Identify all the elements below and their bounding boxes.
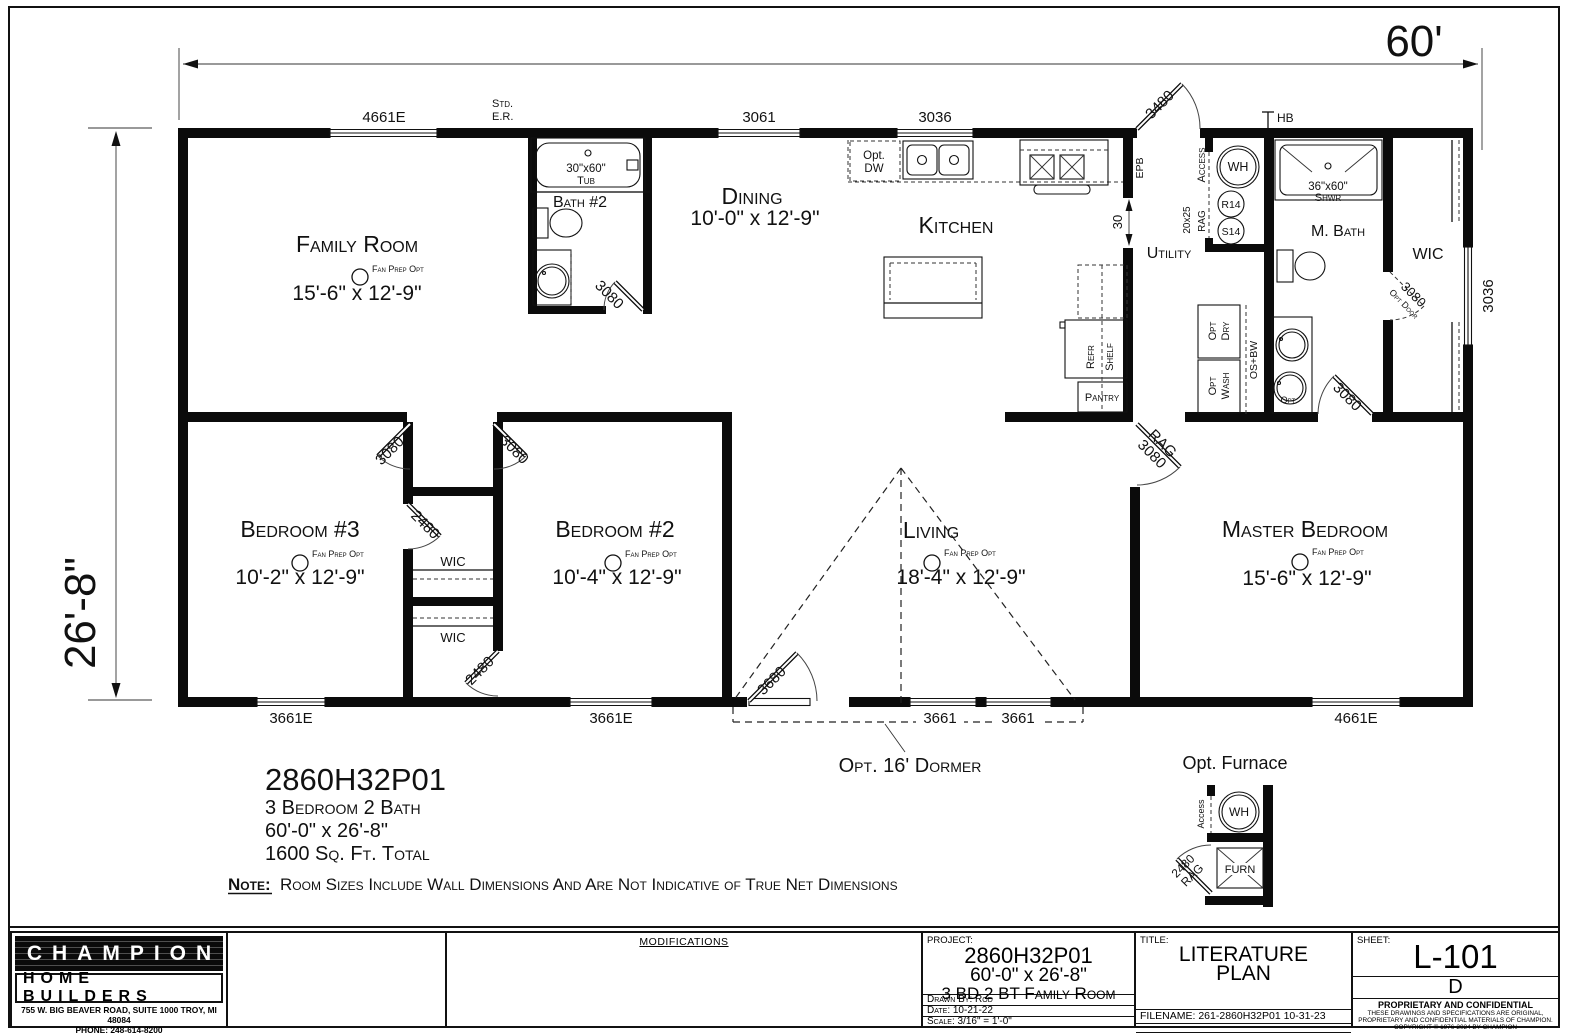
refrigerator: Refr Shelf <box>1060 265 1127 412</box>
window-3661e-bedroom3 <box>257 697 325 707</box>
modifications-header: MODIFICATIONS <box>447 933 921 948</box>
refr-label: Refr <box>1085 345 1097 369</box>
hb-label: HB <box>1277 111 1294 125</box>
range <box>1020 140 1108 194</box>
furn-label: FURN <box>1225 864 1256 876</box>
label-3036-top: 3036 <box>918 109 951 126</box>
sheet-block: SHEET: L-101 D PROPRIETARY AND CONFIDENT… <box>1351 933 1558 1026</box>
title-block: CHAMPION HOME BUILDERS 755 W. BIG BEAVER… <box>10 931 1560 1028</box>
tub-size-label: 30"x60" <box>566 163 606 175</box>
dim-30-label: 30 <box>1110 215 1125 229</box>
scale-row: Scale: 3/16" = 1'-0" <box>923 1016 1134 1027</box>
kitchen-sink <box>903 141 973 179</box>
opt-dormer-label: Opt. 16' Dormer <box>839 755 982 777</box>
opt-furnace-label: Opt. Furnace <box>1182 753 1287 773</box>
wh-label: WH <box>1228 160 1249 174</box>
sheet-revision: D <box>1353 976 1558 998</box>
project-block: PROJECT: 2860H32P01 60'-0" x 26'-8" 3 BD… <box>921 933 1134 1026</box>
furnace-detail: Opt. Furnace WH Access FURN 2480 RAG <box>1169 753 1288 907</box>
label-3061: 3061 <box>742 109 775 126</box>
access-label: Access <box>1196 148 1208 183</box>
floor-plan-drawing: 60' 26'-8" <box>0 0 1570 928</box>
company-division-box: HOME BUILDERS <box>15 973 223 1003</box>
company-name: CHAMPION <box>27 942 221 966</box>
window-4661e-master <box>1312 697 1400 707</box>
modifications-block: MODIFICATIONS <box>445 933 921 1026</box>
master-size: 15'-6" x 12'-9" <box>1242 567 1371 590</box>
bedroom3-name: Bedroom #3 <box>240 516 359 542</box>
window-3661e-bedroom2 <box>570 697 652 707</box>
window-3036-top <box>897 128 973 138</box>
s14-label: S14 <box>1222 226 1241 238</box>
company-division: HOME BUILDERS <box>23 970 221 1006</box>
title-block-section: TITLE: LITERATURE PLAN FILENAME: 261-286… <box>1134 933 1351 1026</box>
living-fan: Fan Prep Opt <box>944 548 996 558</box>
family-fan: Fan Prep Opt <box>372 264 424 274</box>
proprietary-line: PROPRIETARY AND CONFIDENTIAL <box>1353 1000 1558 1010</box>
bath2-fixtures: 30"x60" Tub <box>531 138 645 305</box>
label-3036-right: 3036 <box>1480 279 1497 312</box>
dining-size: 10'-0" x 12'-9" <box>690 207 819 230</box>
std-er-2: E.R. <box>492 111 513 123</box>
master-fan: Fan Prep Opt <box>1312 547 1364 557</box>
company-block: CHAMPION HOME BUILDERS 755 W. BIG BEAVER… <box>12 933 226 1026</box>
bedroom3-size: 10'-2" x 12'-9" <box>235 566 364 589</box>
r14-label: R14 <box>1221 199 1240 211</box>
door-mbath-label: 3080 <box>1329 379 1365 415</box>
sheet-label: SHEET: <box>1357 935 1390 946</box>
note-text: Room Sizes Include Wall Dimensions And A… <box>280 875 898 894</box>
opt-dw-label2: DW <box>864 163 883 175</box>
living-name: Living <box>903 517 959 543</box>
dormer-3661-right: 3661 <box>1001 710 1034 727</box>
mbath-name: M. Bath <box>1311 223 1365 240</box>
family-size: 15'-6" x 12'-9" <box>292 282 421 305</box>
bedroom2-name: Bedroom #2 <box>555 516 674 542</box>
note-label: Note: <box>228 875 271 894</box>
title-label: TITLE: <box>1140 935 1169 946</box>
bedroom2-size: 10'-4" x 12'-9" <box>552 566 681 589</box>
std-er-1: Std. <box>492 98 513 110</box>
furnace-wh-label: WH <box>1229 805 1249 819</box>
label-3661e-b2: 3661E <box>589 710 632 727</box>
window-3661-left <box>910 697 976 707</box>
epb-label: EPB <box>1134 157 1146 178</box>
title-line2: PLAN <box>1136 964 1351 983</box>
window-3661-right <box>986 697 1051 707</box>
summary-beds: 3 Bedroom 2 Bath <box>265 797 421 819</box>
overall-depth-dim: 26'-8" <box>56 557 105 669</box>
label-4661e-top: 4661E <box>362 109 405 126</box>
window-3036-right <box>1463 247 1473 345</box>
floor-plan-sheet: 60' 26'-8" <box>0 0 1570 1036</box>
pantry-label: Pantry <box>1085 392 1120 404</box>
family-name: Family Room <box>296 231 418 257</box>
wic-master-name: WIC <box>1412 246 1443 263</box>
dining-name: Dining <box>721 183 782 209</box>
empty-row-2 <box>1136 1032 1351 1036</box>
opt-sink-label: Opt <box>1281 395 1296 405</box>
title-strip-top-line <box>10 926 1560 928</box>
filename-row: FILENAME: 261-2860H32P01 10-31-23 <box>1136 1009 1351 1023</box>
living-size: 18'-4" x 12'-9" <box>896 566 1025 589</box>
project-size: 60'-0" x 26'-8" <box>923 966 1134 985</box>
wic1-label: WIC <box>440 554 465 569</box>
empty-row-1 <box>1136 1023 1351 1032</box>
label-3661e-b3: 3661E <box>269 710 312 727</box>
furnace-access-label: Access <box>1196 799 1206 829</box>
door-bedroom3-label: 3080 <box>372 433 408 469</box>
project-model: 2860H32P01 <box>923 946 1134 966</box>
interior-walls <box>178 138 1463 707</box>
bedroom3-fan: Fan Prep Opt <box>312 549 364 559</box>
door-rag3080-label: RAG 3080 <box>1134 426 1180 472</box>
window-4661e-top <box>330 128 437 138</box>
bath2-name: Bath #2 <box>553 194 607 211</box>
kitchen-name: Kitchen <box>919 212 994 238</box>
blank-block <box>226 933 445 1026</box>
door-opt-label: 3080 Opt Door <box>1387 276 1432 321</box>
label-4661e-master: 4661E <box>1334 710 1377 727</box>
master-name: Master Bedroom <box>1222 516 1388 542</box>
mbath-fixtures: 36"x60" Shwr Opt <box>1272 140 1459 413</box>
project-label: PROJECT: <box>927 935 973 946</box>
kitchen-fixtures: Opt. DW Refr <box>848 140 1127 412</box>
legal-line-1: THESE DRAWINGS AND SPECIFICATIONS ARE OR… <box>1353 1010 1558 1017</box>
summary-sqft: 1600 Sq. Ft. Total <box>265 843 430 865</box>
summary-size: 60'-0" x 26'-8" <box>265 820 388 842</box>
wic2-label: WIC <box>440 630 465 645</box>
opt-wash-2: Wash <box>1220 372 1232 399</box>
copyright-line: COPYRIGHT © 1976-2024 BY CHAMPION <box>1353 1024 1558 1031</box>
island <box>884 257 982 318</box>
dormer: 3661 3661 Opt. 16' Dormer <box>733 468 1083 777</box>
sheet-legal: PROPRIETARY AND CONFIDENTIAL THESE DRAWI… <box>1353 998 1558 1031</box>
plan-summary: 2860H32P01 3 Bedroom 2 Bath 60'-0" x 26'… <box>228 762 898 894</box>
dormer-3661-left: 3661 <box>923 710 956 727</box>
shwr-label: Shwr <box>1315 192 1342 204</box>
bedroom2-fan: Fan Prep Opt <box>625 549 677 559</box>
overall-width-dim: 60' <box>1385 17 1442 66</box>
grille-label: 20x25 <box>1182 206 1193 234</box>
company-logo: CHAMPION <box>15 936 223 971</box>
rag-label: RAG <box>1197 210 1208 232</box>
tub-label: Tub <box>577 175 595 187</box>
opt-dw-label1: Opt. <box>863 150 885 162</box>
company-address: 755 W. BIG BEAVER ROAD, SUITE 1000 TROY,… <box>12 1005 226 1035</box>
legal-line-2: PROPRIETARY AND CONFIDENTIAL MATERIALS O… <box>1353 1017 1558 1024</box>
opt-dry-1: Opt <box>1207 321 1219 340</box>
summary-model: 2860H32P01 <box>265 762 446 797</box>
opt-dry-2: Dry <box>1220 321 1232 341</box>
opt-wash-1: Opt <box>1207 376 1219 395</box>
shelf-label: Shelf <box>1104 343 1116 371</box>
window-3061 <box>718 128 800 138</box>
osbw-label: OS+BW <box>1248 341 1260 379</box>
date-row: Date: 10-21-22 <box>923 1005 1134 1016</box>
utility-name: Utility <box>1147 245 1192 262</box>
